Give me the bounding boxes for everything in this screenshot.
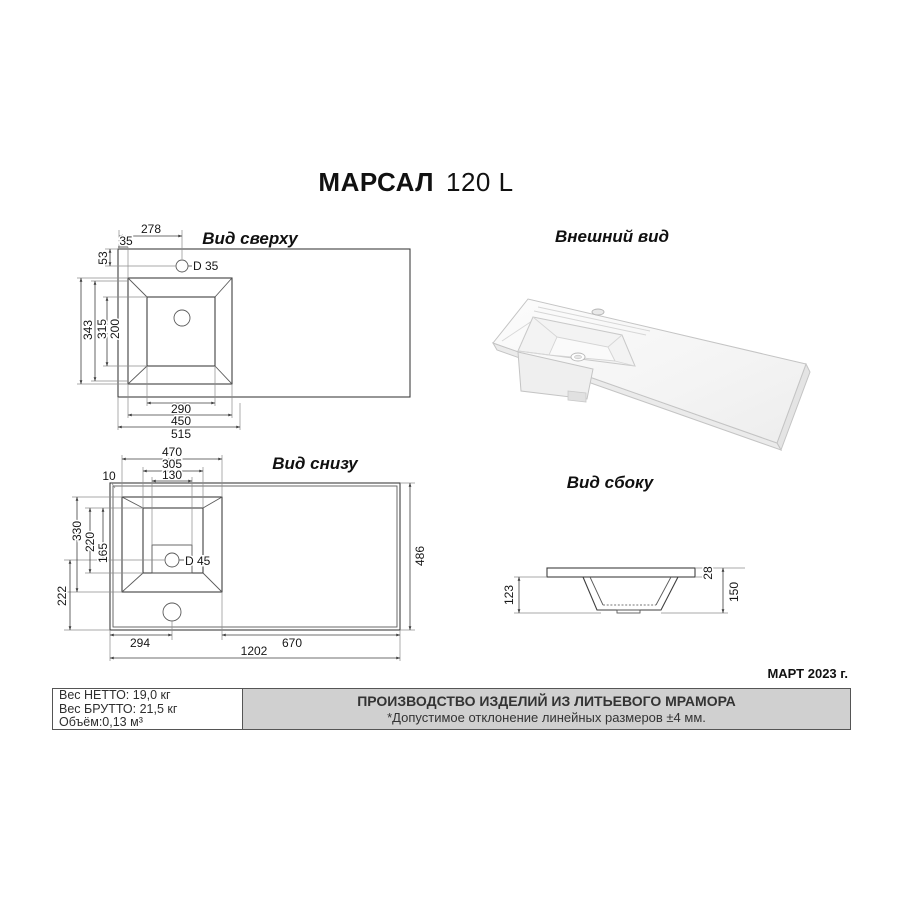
volume: Объём:0,13 м³	[59, 716, 236, 729]
bottom-view-dimensions: 470 305 130 10 330 220 165 222	[55, 445, 427, 661]
dim-515: 515	[171, 427, 191, 441]
dim-315: 315	[95, 319, 109, 339]
net-weight: Вес НЕТТО: 19,0 кг	[59, 689, 236, 702]
dim-450: 450	[171, 414, 191, 428]
faucet-hole	[176, 260, 188, 272]
bottom-view-title: Вид снизу	[272, 454, 359, 473]
countertop-outline	[118, 249, 410, 397]
spec-table: Вес НЕТТО: 19,0 кг Вес БРУТТО: 21,5 кг О…	[52, 688, 851, 730]
top-view-dimensions: 278 35 53 343 315 200	[77, 222, 240, 441]
technical-drawing: Вид сверху D 35 278 35	[0, 0, 900, 900]
production-info-cell: ПРОИЗВОДСТВО ИЗДЕЛИЙ ИЗ ЛИТЬЕВОГО МРАМОР…	[243, 689, 850, 729]
drain-hole	[174, 310, 190, 326]
dim-294: 294	[130, 636, 150, 650]
dim-150: 150	[727, 582, 741, 602]
tolerance-note: *Допустимое отклонение линейных размеров…	[387, 710, 706, 725]
side-view-title: Вид сбоку	[567, 473, 655, 492]
external-view-title: Внешний вид	[555, 227, 669, 246]
top-view: Вид сверху D 35 278 35	[77, 222, 410, 441]
basin-inner	[147, 297, 215, 366]
drain-hole-label: D 45	[185, 554, 211, 568]
basin-bottom-corner-lines	[122, 497, 222, 592]
dim-222: 222	[55, 586, 69, 606]
dim-1202: 1202	[241, 644, 268, 658]
spec-sheet: МАРСАЛ120 L Вид сверху D 35	[0, 0, 900, 900]
dim-343: 343	[81, 320, 95, 340]
dim-200: 200	[108, 319, 122, 339]
side-view: Вид сбоку 123 28 150	[502, 473, 745, 613]
dim-123: 123	[502, 585, 516, 605]
date-note: МАРТ 2023 г.	[767, 666, 848, 681]
dim-130: 130	[162, 468, 182, 482]
side-view-dimensions: 123 28 150	[502, 566, 745, 613]
dim-486: 486	[413, 546, 427, 566]
top-view-title: Вид сверху	[202, 229, 299, 248]
faucet-hole-label: D 35	[193, 259, 219, 273]
sink-3d-render	[493, 299, 810, 450]
basin-corner-lines	[128, 278, 232, 384]
dim-10: 10	[102, 469, 116, 483]
dim-35: 35	[119, 234, 133, 248]
faucet-hole-3d	[592, 309, 604, 315]
dim-28: 28	[701, 566, 715, 580]
external-view: Внешний вид	[493, 227, 810, 450]
faucet-hole-bottom	[163, 603, 181, 621]
dim-220: 220	[83, 532, 97, 552]
basin-profile	[583, 577, 678, 613]
production-note: ПРОИЗВОДСТВО ИЗДЕЛИЙ ИЗ ЛИТЬЕВОГО МРАМОР…	[357, 693, 736, 709]
drain-hole-bottom	[165, 553, 179, 567]
dim-53: 53	[96, 251, 110, 265]
bottom-view: Вид снизу D 45	[55, 445, 427, 661]
dim-165: 165	[96, 543, 110, 563]
dim-330: 330	[70, 521, 84, 541]
countertop-profile	[547, 568, 695, 577]
countertop-bottom-inner	[113, 486, 397, 627]
basin-bottom-outer	[122, 497, 222, 592]
weight-info-cell: Вес НЕТТО: 19,0 кг Вес БРУТТО: 21,5 кг О…	[53, 689, 243, 729]
countertop-bottom-outline	[110, 483, 400, 630]
dim-670: 670	[282, 636, 302, 650]
dim-278: 278	[141, 222, 161, 236]
gross-weight: Вес БРУТТО: 21,5 кг	[59, 703, 236, 716]
